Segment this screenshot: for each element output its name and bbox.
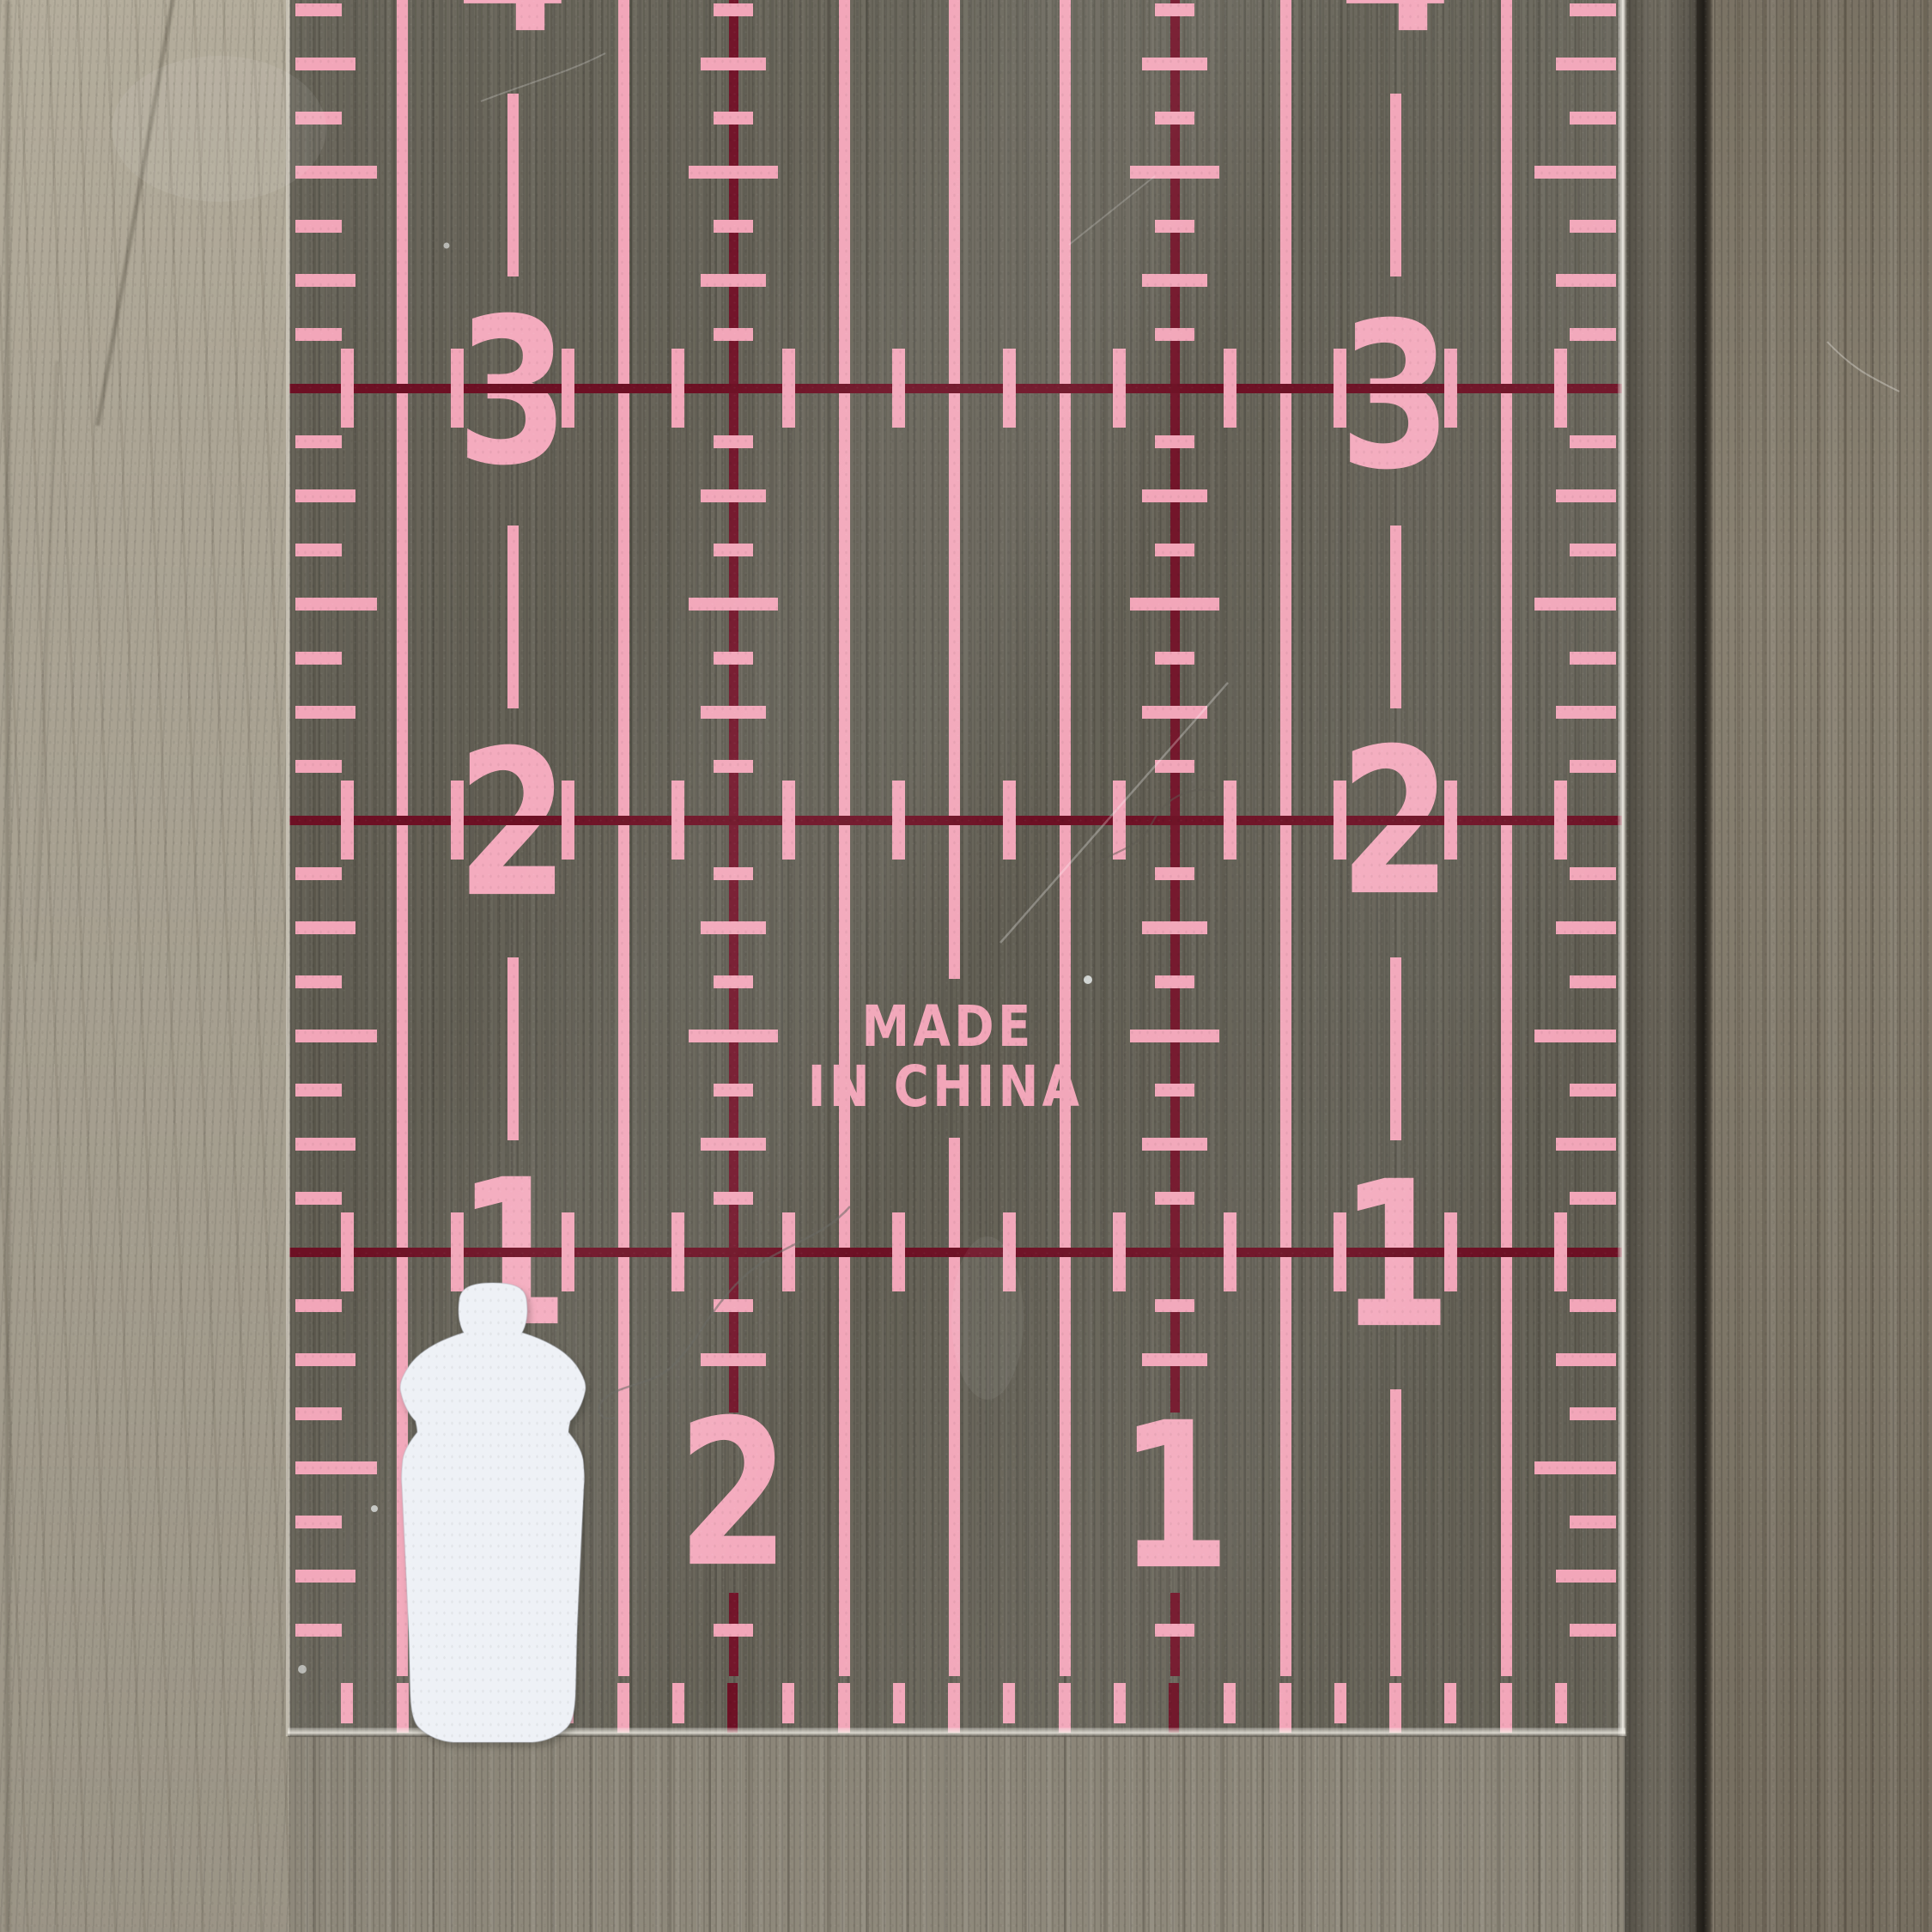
- quilting-ruler: 4 3 2 1 4 3 2 1 2 1 MADE IN CHINA: [289, 0, 1622, 1736]
- ruler-cast-shadow: [1625, 0, 1700, 1932]
- wood-plank-left: [0, 0, 289, 1932]
- wood-grain-streak: [5, 0, 10, 1932]
- wood-grain-streak: [34, 361, 58, 962]
- photo-scene: 4 3 2 1 4 3 2 1 2 1 MADE IN CHINA: [0, 0, 1932, 1932]
- wood-plank-right: [1714, 0, 1932, 1932]
- wood-grain-streak: [95, 0, 180, 426]
- wood-plank-seam: [1697, 0, 1714, 1932]
- acrylic-sheen: [289, 0, 1622, 1736]
